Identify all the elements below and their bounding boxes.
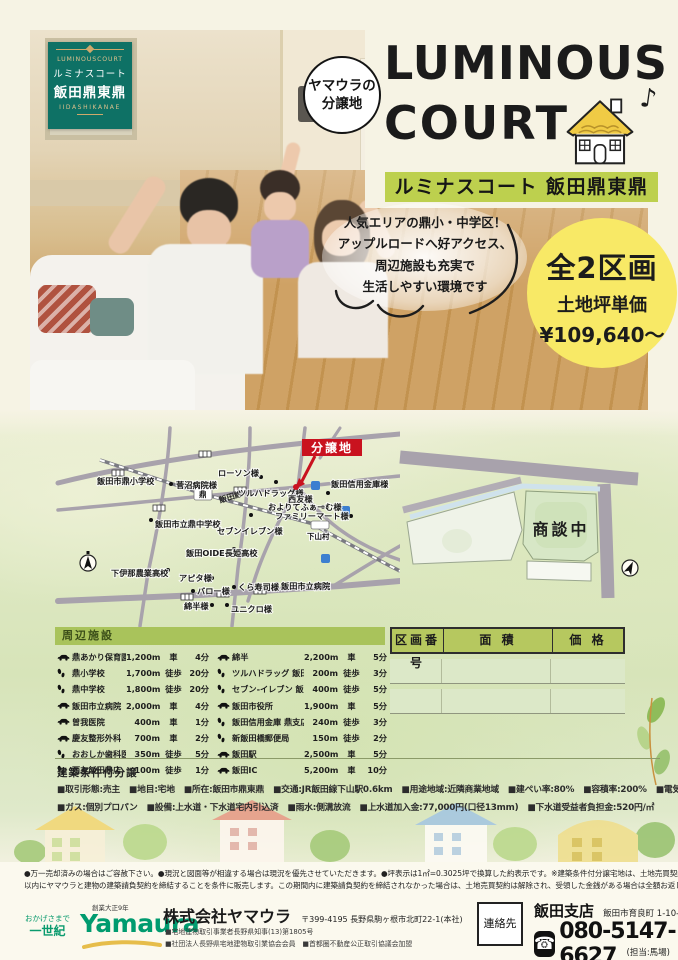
poi-label: 菅沼病院様: [176, 480, 218, 490]
footer-tagline: おかげさまで 一世紀: [25, 914, 70, 939]
site-flag-label: 分譲地: [311, 440, 353, 455]
term-item: ■電気:中部電力: [656, 785, 678, 795]
facility-name: 綿半: [232, 651, 304, 663]
col-price: 価 格: [553, 629, 623, 652]
facility-name: ツルハドラッグ 飯田西鼎店: [232, 667, 304, 679]
facility-time: 5分: [362, 683, 387, 695]
main-title-line2: COURT: [384, 96, 569, 150]
facility-distance: 400m: [126, 717, 160, 727]
term-item: ■取引形態:売主: [57, 785, 120, 795]
poi-label: 飯田市鼎小学校: [96, 476, 155, 486]
poi-label: くら寿司様: [238, 582, 280, 592]
lot-price-table: 区画番号 面 積 価 格: [390, 627, 625, 714]
flyer-page: LUMINOUSCOURT ルミナスコート 飯田鼎東鼎 IIDASHIKANAE…: [0, 0, 678, 960]
poi-label: 飯田市立病院: [280, 581, 331, 591]
poi-label: アピタ様: [179, 573, 213, 583]
facility-distance: 1,700m: [126, 668, 160, 678]
lot-price-row: [390, 659, 625, 684]
col-lot-number: 区画番号: [392, 629, 444, 652]
term-item: ■地目:宅地: [129, 785, 175, 795]
facility-mode: 徒歩: [341, 683, 362, 695]
facilities-table: 鼎あかり保育園1,200m車4分鼎小学校1,700m徒歩20分鼎中学校1,800…: [57, 649, 387, 779]
term-item: ■ガス:個別プロパン: [57, 803, 138, 813]
poi-label: ファミリーマート様: [275, 511, 350, 521]
facility-name: 鼎あかり保育園: [72, 651, 126, 663]
term-item: ■雨水:側溝放流: [287, 803, 350, 813]
facility-mode: 車: [341, 700, 362, 712]
facility-time: 5分: [362, 700, 387, 712]
facility-time: 4分: [184, 651, 209, 663]
facility-name: セブン-イレブン 飯田水の手店: [232, 683, 304, 695]
car-icon: [57, 702, 72, 709]
contact-person: (担当:馬場): [560, 946, 670, 958]
facility-name: 飯田信用金庫 鼎支店: [232, 716, 304, 728]
facilities-column-left: 鼎あかり保育園1,200m車4分鼎小学校1,700m徒歩20分鼎中学校1,800…: [57, 649, 209, 779]
facilities-header: 周辺施設: [55, 627, 385, 645]
phone-icon: ☎: [534, 931, 555, 957]
facility-distance: 150m: [304, 733, 338, 743]
facilities-column-right: 綿半2,200m車5分ツルハドラッグ 飯田西鼎店200m徒歩3分セブン-イレブン…: [217, 649, 387, 779]
facility-distance: 1,800m: [126, 684, 160, 694]
photo-father-body: [148, 244, 263, 374]
main-title-line1: LUMINOUS: [384, 36, 668, 90]
corner-badge: LUMINOUSCOURT ルミナスコート 飯田鼎東鼎 IIDASHIKANAE: [48, 42, 132, 129]
photo-child-body: [251, 220, 309, 278]
house-icon: [563, 94, 637, 170]
facility-name: 鼎小学校: [72, 667, 126, 679]
car-icon: [217, 702, 232, 709]
car-icon: [57, 735, 72, 742]
facility-row: 飯田駅2,500m車5分: [217, 746, 387, 762]
price-label: 土地坪単価: [527, 291, 677, 317]
round-badge-line2: 分譲地: [305, 95, 379, 113]
facility-mode: 徒歩: [341, 732, 362, 744]
facility-row: 綿半2,200m車5分: [217, 649, 387, 665]
facility-time: 20分: [184, 683, 209, 695]
subtitle-band: ルミナスコート 飯田鼎東鼎: [385, 172, 658, 202]
badge-ornament-bottom: [77, 114, 103, 115]
facility-time: 5分: [362, 651, 387, 663]
facility-distance: 5,200m: [304, 765, 338, 775]
term-item: ■所在:飯田市鼎東鼎: [184, 785, 264, 795]
license-line1: ■宅地建物取引事業者長野県知事(13)第1805号: [165, 926, 313, 936]
station-shimoyama-label: 下山村: [307, 531, 330, 541]
facility-distance: 2,000m: [126, 701, 160, 711]
facility-distance: 2,200m: [304, 652, 338, 662]
facility-time: 2分: [362, 732, 387, 744]
facility-row: 飯田市立病院2,000m車4分: [57, 698, 209, 714]
facility-name: 新飯田橋郵便局: [232, 732, 304, 744]
lot-price-row: [390, 689, 625, 714]
facility-row: 鼎中学校1,800m徒歩20分: [57, 681, 209, 697]
photo-child-face: [264, 192, 296, 222]
poi-label: ローソン様: [218, 468, 260, 478]
facility-time: 3分: [362, 667, 387, 679]
walk-icon: [217, 684, 232, 694]
term-item: ■交通:JR飯田線下山駅0.6km: [273, 785, 392, 795]
compass-icon: [80, 551, 96, 571]
term-item: ■用途地域:近隣商業地域: [402, 785, 499, 795]
facility-row: 飯田市役所1,900m車5分: [217, 698, 387, 714]
poi-label: セブンイレブン様: [217, 526, 283, 536]
facility-row: セブン-イレブン 飯田水の手店400m徒歩5分: [217, 681, 387, 697]
car-icon: [217, 767, 232, 774]
contact-label-box: 連絡先: [477, 902, 523, 946]
facility-mode: 徒歩: [341, 716, 362, 728]
facility-mode: 車: [341, 651, 362, 663]
badge-kana-label: ルミナスコート: [48, 66, 132, 80]
facility-time: 3分: [362, 716, 387, 728]
tagline-bottom: 一世紀: [25, 924, 70, 940]
facility-row: 飯田信用金庫 鼎支店240m徒歩3分: [217, 714, 387, 730]
poi-label: 飯田市立鼎中学校: [154, 519, 221, 529]
disclaimer-line1: ●万一売却済みの場合はご容赦下さい。●現況と図面等が相違する場合は現況を優先させ…: [24, 868, 656, 879]
facility-name: 鼎中学校: [72, 683, 126, 695]
facility-row: 曽我医院400m車1分: [57, 714, 209, 730]
badge-ornament-top: [56, 49, 124, 56]
lot-count: 全2区画: [527, 245, 677, 287]
facility-name: 曽我医院: [72, 716, 126, 728]
walk-icon: [217, 668, 232, 678]
facility-mode: 車: [163, 651, 184, 663]
facility-row: 飯田IC5,200m車10分: [217, 762, 387, 778]
poi-label: 綿半様: [184, 601, 209, 611]
poi-label: 飯田信用金庫様: [330, 479, 389, 489]
facility-row: おおしか歯科医院350m徒歩5分: [57, 746, 209, 762]
lot-price-table-header: 区画番号 面 積 価 格: [390, 627, 625, 654]
facility-row: 慶友整形外科700m車2分: [57, 730, 209, 746]
term-item: ■容積率:200%: [583, 785, 647, 795]
tagline-top: おかげさまで: [25, 914, 70, 924]
lot-parcel-lower: [527, 561, 591, 581]
access-map: 鼎 下山村 飯田線 飯田市鼎小学校 菅沼病院様 ローソン様 ツルハドラッグ様 西…: [55, 423, 400, 628]
speech-bubble-strokes: [328, 213, 526, 335]
compass-icon: [622, 560, 638, 576]
facility-mode: 車: [163, 732, 184, 744]
facility-distance: 1,200m: [126, 652, 160, 662]
facility-time: 1分: [184, 764, 209, 776]
license-line2: ■社団法人長野県宅地建物取引業協会会員 ■首都圏不動産公正取引協議会加盟: [165, 938, 412, 948]
house-yellow: [35, 806, 115, 868]
car-icon: [217, 654, 232, 661]
branch-line: 飯田支店 飯田市育良町 1-10-3: [534, 900, 678, 921]
company-name: 株式会社ヤマウラ: [163, 907, 291, 926]
facility-row: 鼎あかり保育園1,200m車4分: [57, 649, 209, 665]
badge-romaji-label: IIDASHIKANAE: [48, 104, 132, 111]
footer: おかげさまで 一世紀 創業大正9年 Yamaura 株式会社ヤマウラ 〒399-…: [0, 896, 678, 960]
poi-label: 下伊那農業高校: [111, 568, 169, 578]
house-yellow-round: [558, 820, 638, 868]
facility-distance: 240m: [304, 717, 338, 727]
facility-mode: 車: [163, 700, 184, 712]
badge-en-label: LUMINOUSCOURT: [48, 56, 132, 63]
terms-line1: ■取引形態:売主■地目:宅地■所在:飯田市鼎東鼎■交通:JR飯田線下山駅0.6k…: [57, 782, 667, 795]
facility-name: 慶友整形外科: [72, 732, 126, 744]
term-item: ■上水道加入金:77,000円(口径13mm): [359, 803, 518, 813]
term-item: ■設備:上水道・下水道宅内引込済: [147, 803, 279, 813]
walk-icon: [217, 717, 232, 727]
facility-time: 4分: [184, 700, 209, 712]
facility-row: 新飯田橋郵便局150m徒歩2分: [217, 730, 387, 746]
facility-mode: 徒歩: [163, 667, 184, 679]
facility-mode: 徒歩: [163, 683, 184, 695]
terms-line2: ■ガス:個別プロパン■設備:上水道・下水道宅内引込済■雨水:側溝放流■上水道加入…: [57, 800, 667, 813]
col-area: 面 積: [444, 629, 553, 652]
terms-header: 建築条件付分譲: [57, 765, 138, 780]
poi-label: バロー様: [197, 586, 231, 596]
facility-time: 10分: [362, 764, 387, 776]
facility-time: 1分: [184, 716, 209, 728]
badge-name-label: 飯田鼎東鼎: [48, 81, 132, 101]
car-icon: [57, 654, 72, 661]
walk-icon: [57, 684, 72, 694]
disclaimer-line2: 以内にヤマウラと建物の建築請負契約を締結することを条件に販売します。この期間内に…: [24, 880, 656, 891]
station-kanae-label: 鼎: [199, 489, 207, 499]
facility-mode: 徒歩: [163, 764, 184, 776]
facility-mode: 徒歩: [341, 667, 362, 679]
term-item: ■下水道受益者負担金:520円/㎡: [527, 803, 654, 813]
car-icon: [57, 718, 72, 725]
logo-swoosh: [82, 940, 162, 950]
facility-time: 2分: [184, 732, 209, 744]
car-icon: [217, 751, 232, 758]
facility-distance: 1,900m: [304, 701, 338, 711]
price-value: ¥109,640〜: [527, 319, 677, 348]
facility-name: 飯田市立病院: [72, 700, 126, 712]
term-item: ■建ぺい率:80%: [508, 785, 574, 795]
lot-parcel-left-shade: [442, 529, 472, 553]
facility-distance: 200m: [304, 668, 338, 678]
price-badge: 全2区画 土地坪単価 ¥109,640〜: [527, 218, 677, 368]
facility-time: 20分: [184, 667, 209, 679]
negotiation-status-label: 商談中: [532, 520, 589, 539]
poi-label: ユニクロ様: [231, 604, 273, 614]
walk-icon: [57, 668, 72, 678]
walk-icon: [217, 733, 232, 743]
facility-mode: 車: [163, 716, 184, 728]
facility-row: ツルハドラッグ 飯田西鼎店200m徒歩3分: [217, 665, 387, 681]
terms-divider: [55, 758, 660, 759]
facility-distance: 400m: [304, 684, 338, 694]
facility-row: 鼎小学校1,700m徒歩20分: [57, 665, 209, 681]
leaves-decoration: [626, 690, 678, 790]
facility-name: 飯田IC: [232, 764, 304, 776]
head-office-address: 〒399-4195 長野県駒ヶ根市北町22-1(本社): [301, 915, 462, 924]
poi-label: 飯田OIDE長姫高校: [185, 548, 258, 558]
company-line: 株式会社ヤマウラ 〒399-4195 長野県駒ヶ根市北町22-1(本社): [163, 903, 463, 927]
facility-mode: 車: [341, 764, 362, 776]
branch-name: 飯田支店: [534, 902, 594, 920]
lot-diagram: 商談中: [395, 440, 678, 635]
facility-distance: 700m: [126, 733, 160, 743]
photo-pillow: [38, 285, 96, 333]
branch-address: 飯田市育良町 1-10-3: [603, 909, 678, 919]
facility-name: 飯田市役所: [232, 700, 304, 712]
photo-pillow: [90, 298, 134, 336]
round-badge-line1: ヤマウラの: [305, 77, 379, 95]
yamaura-round-badge: ヤマウラの 分譲地: [303, 56, 381, 134]
